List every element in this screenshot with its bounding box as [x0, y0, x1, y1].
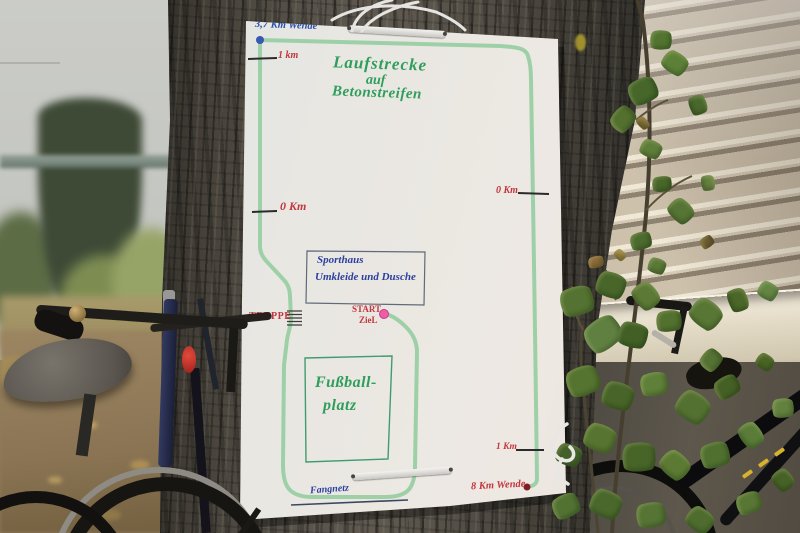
fastening-strings — [0, 0, 800, 533]
red-reflector — [182, 346, 196, 373]
rope-right — [552, 424, 573, 484]
photo-scene: 3,7 Km Wende 1 km Laufstrecke auf Betons… — [0, 0, 800, 533]
bicycle-bell — [69, 305, 86, 322]
string-top — [332, 0, 465, 31]
